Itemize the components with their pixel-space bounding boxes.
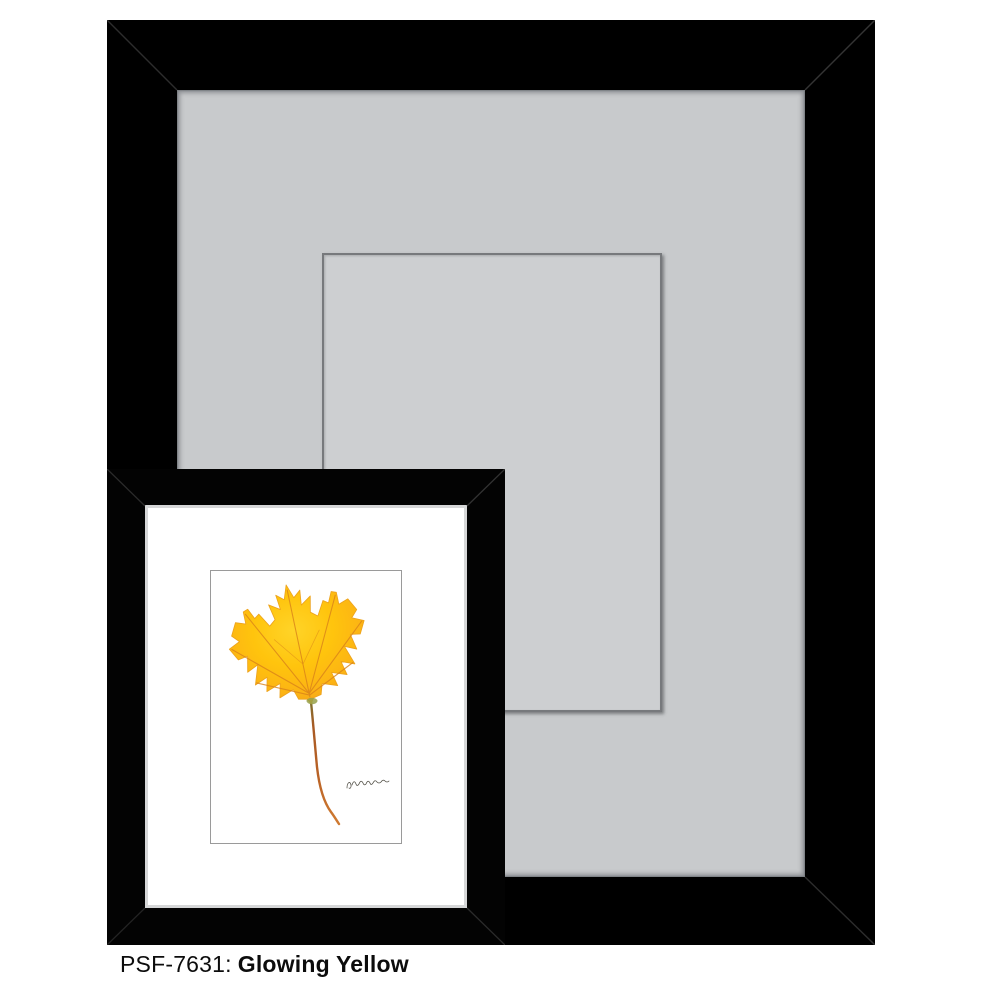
maple-leaf-artwork — [210, 570, 402, 844]
small-picture-frame — [107, 469, 505, 945]
silver-frame-lip — [145, 505, 467, 908]
maple-leaf-illustration — [211, 571, 401, 843]
leaf-blade — [219, 571, 379, 718]
artist-signature — [347, 780, 389, 788]
product-image: PSF-7631:Glowing Yellow — [0, 0, 984, 984]
caption: PSF-7631:Glowing Yellow — [120, 951, 409, 977]
leaf-stem — [311, 702, 339, 824]
caption-title: Glowing Yellow — [238, 951, 409, 977]
white-mat-board — [148, 508, 464, 905]
stem-junction-green — [307, 697, 318, 703]
caption-sku: PSF-7631: — [120, 951, 232, 977]
